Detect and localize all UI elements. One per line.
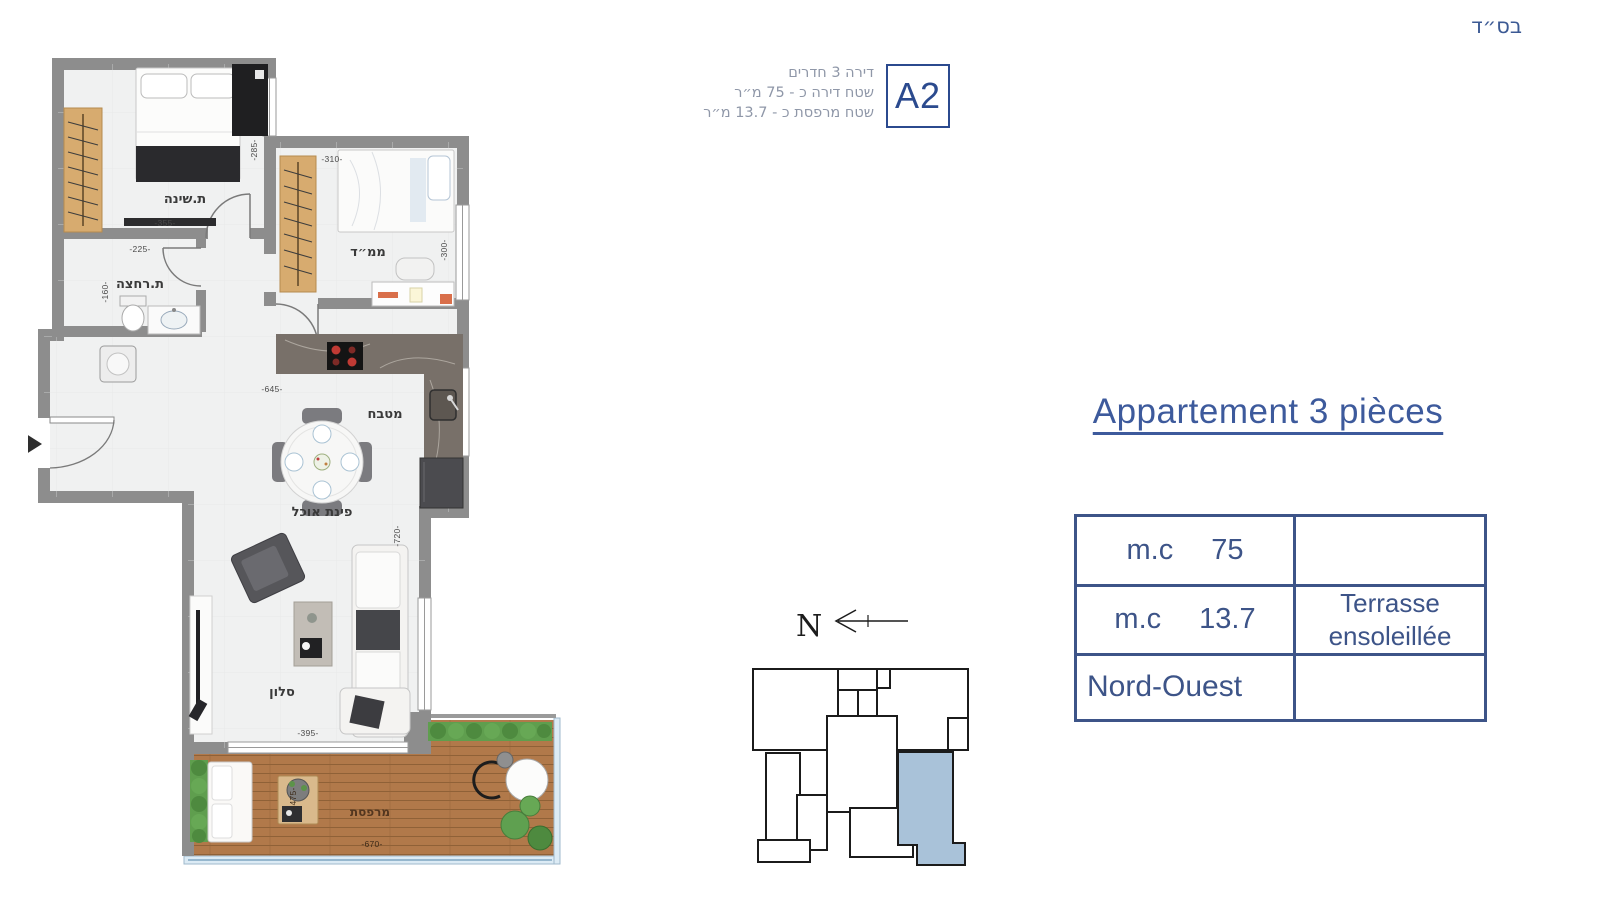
dim-mamad-width: -310- <box>321 154 342 164</box>
tv-console <box>189 596 212 734</box>
dim-bath-width: -225- <box>129 244 150 254</box>
spec-area-note-cell <box>1293 517 1484 584</box>
balcony-lounge <box>208 762 252 842</box>
apartment-info-line2: שטח דירה כ - 75 מ״ר <box>618 83 874 103</box>
label-bedroom: ת.שינה <box>164 192 206 207</box>
terrace-value: 13.7 <box>1199 603 1255 636</box>
terrace-note-line1: Terrasse <box>1340 587 1440 620</box>
dim-kitchen-width: -645- <box>261 384 282 394</box>
balcony-right-railing <box>554 718 560 864</box>
label-dining: פינת אוכל <box>292 505 353 520</box>
spec-terrace-cell: m.c 13.7 <box>1077 584 1293 653</box>
stove <box>327 342 363 370</box>
apartment-title: Appartement 3 pièces <box>1048 392 1488 432</box>
label-balcony: מרפסת <box>350 805 390 819</box>
mamad-bed <box>338 150 454 232</box>
terrace-note-line2: ensoleillée <box>1329 620 1452 653</box>
dim-mamad-height: -300- <box>439 239 449 260</box>
bsd-text: בס״ד <box>1438 14 1522 38</box>
unit-badge: A2 <box>886 64 950 128</box>
balcony-hedge-left <box>190 760 208 843</box>
bedroom-closet-detail <box>255 70 264 79</box>
apartment-info-line3: שטח מרפסת כ - 13.7 מ״ר <box>618 103 874 123</box>
bedroom-bed <box>136 68 240 182</box>
balcony-hedge-top <box>428 722 552 741</box>
dim-bedroom-height: -285- <box>249 139 259 160</box>
north-label: N <box>796 609 822 644</box>
fridge <box>420 458 463 508</box>
north-compass: N <box>796 609 908 644</box>
page: בס״ד דירה 3 חדרים שטח דירה כ - 75 מ״ר שט… <box>0 0 1600 900</box>
building-key-plan: N <box>728 592 978 877</box>
kitchen-sink <box>430 390 458 420</box>
terrace-unit: m.c <box>1114 603 1161 636</box>
balcony-top-railing <box>424 714 556 718</box>
label-mamad: ממ״ד <box>350 245 386 260</box>
apartment-info-line1: דירה 3 חדרים <box>618 63 874 83</box>
dim-balcony-width: -670- <box>361 839 382 849</box>
balcony-plant-stand <box>278 776 318 824</box>
apartment-info: דירה 3 חדרים שטח דירה כ - 75 מ״ר שטח מרפ… <box>618 63 874 123</box>
dim-balcony-height: -475- <box>288 787 298 808</box>
bedroom-wardrobe <box>64 108 102 232</box>
mamad-wardrobe <box>280 156 316 292</box>
dim-living-width: -395- <box>297 728 318 738</box>
area-value: 75 <box>1211 534 1243 567</box>
washing-machine <box>100 346 136 382</box>
area-unit: m.c <box>1127 534 1174 567</box>
spec-terrace-note-cell: Terrasse ensoleillée <box>1293 584 1484 653</box>
entry-door-leaf <box>50 417 114 423</box>
dim-living-height: -720- <box>392 525 402 546</box>
dim-bath-height: -160- <box>100 281 110 302</box>
spec-table: m.c 75 m.c 13.7 Terrasse ensoleillée Nor… <box>1074 514 1487 722</box>
coffee-table <box>294 602 332 666</box>
bathroom-sink <box>148 306 200 334</box>
toilet <box>120 296 146 331</box>
label-kitchen: מטבח <box>367 407 402 422</box>
spec-orientation-cell: Nord-Ouest <box>1077 653 1293 720</box>
spec-area-cell: m.c 75 <box>1077 517 1293 584</box>
dim-bedroom-width: -355- <box>154 218 175 228</box>
spec-orientation-note-cell <box>1293 653 1484 720</box>
label-living: סלון <box>269 685 295 700</box>
label-bathroom: ת.רחצה <box>116 277 164 292</box>
floor-plan: ת.שינה ממ״ד ת.רחצה מטבח פינת אוכל סלון מ… <box>28 58 573 880</box>
